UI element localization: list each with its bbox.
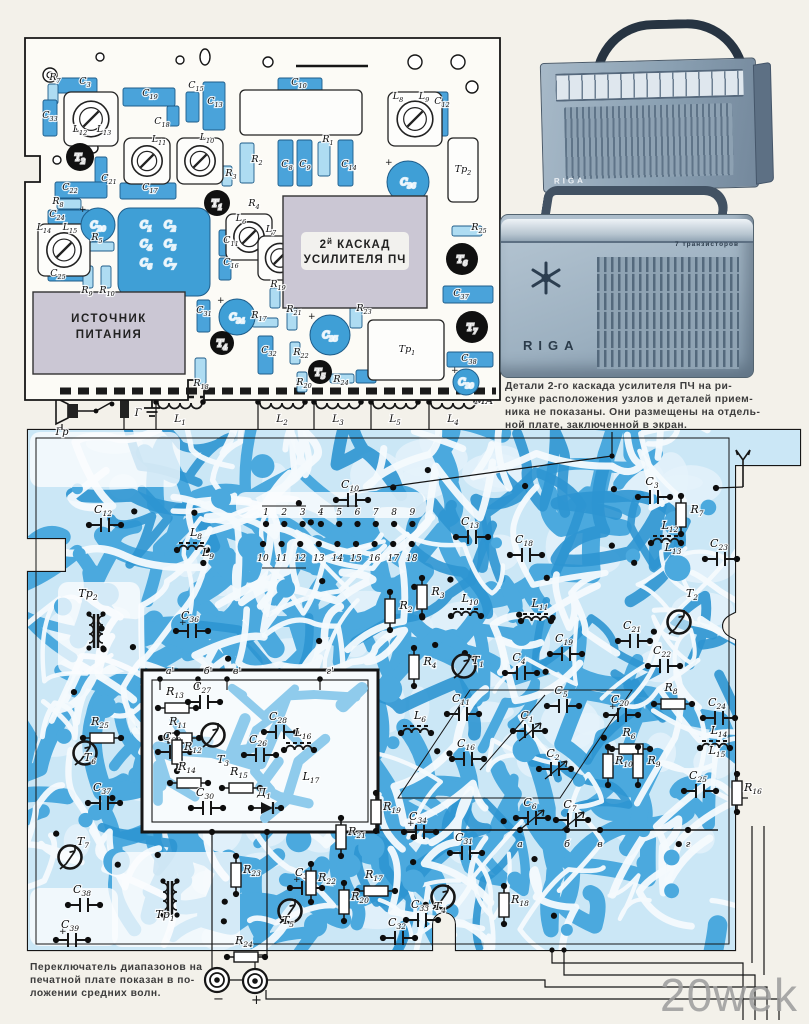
label-в: в [597, 839, 603, 850]
caption-line: Переключатель диапазонов на [30, 961, 242, 974]
label-L4: L4 [446, 413, 459, 427]
comp-part [57, 78, 97, 93]
label-1: 1 [263, 508, 269, 518]
radio-photo-2: 7 транзисторов RIGA [496, 184, 760, 384]
label-4: 4 [317, 508, 324, 518]
label-г: г [686, 839, 691, 850]
svg-text:+: + [79, 205, 87, 215]
radio2-emblem-icon [529, 261, 563, 295]
radio1-speaker-grille [564, 103, 734, 179]
sym-t [668, 610, 691, 634]
label-а': а' [166, 666, 174, 677]
label-13: 13 [313, 554, 325, 564]
comp-part [318, 142, 330, 176]
radio2-chrome-strip [501, 219, 753, 243]
label-8: 8 [391, 508, 397, 518]
label-L2: L2 [275, 413, 288, 427]
label-15: 15 [350, 554, 362, 564]
label-7: 7 [373, 508, 379, 518]
label-в': в' [233, 666, 241, 677]
label-14: 14 [332, 554, 344, 564]
note-right: Детали 2-го каскада усилителя ПЧ на ри- … [505, 381, 805, 433]
label-11: 11 [276, 554, 287, 564]
connector-sign: + [251, 993, 262, 1008]
shield-ps-title: ПИТАНИЯ [76, 329, 142, 341]
radio2-body: 7 транзисторов RIGA [500, 214, 754, 378]
radio2-brand-label: RIGA [523, 338, 580, 353]
label-б: б [564, 839, 570, 850]
radio2-subtitle: 7 транзисторов [675, 241, 739, 248]
label-17: 17 [387, 554, 399, 564]
label-3: 3 [300, 508, 306, 518]
radio1-body: RIGA [540, 57, 759, 193]
caption-line: печатной плате показан в по- [30, 974, 242, 987]
svg-text:+: + [451, 366, 459, 376]
sym-t [202, 723, 225, 747]
label-L5: L5 [388, 413, 401, 427]
note-line: сунке расположения узлов и деталей прием… [505, 394, 805, 407]
radio-photo-1: RIGA [533, 17, 786, 199]
caption-line: ложении средних волн. [30, 987, 242, 1000]
shield-ps-title: ИСТОЧНИК [71, 313, 147, 325]
label-10: 10 [257, 554, 269, 564]
caption-bottom: Переключатель диапазонов на печатной пла… [30, 961, 242, 1001]
comp-part [240, 90, 362, 135]
note-line: ника не показаны. Они размещены на отдел… [505, 407, 805, 420]
shield-if-title2: УСИЛИТЕЛЯ ПЧ [304, 254, 407, 266]
label-б': б' [204, 666, 212, 677]
radio1-side-panel [753, 62, 774, 185]
note-line: ной плате, заключенной в экран. [505, 420, 805, 433]
svg-text:+: + [308, 312, 316, 322]
label-6: 6 [355, 508, 361, 518]
label-Г: Г [134, 408, 142, 419]
component-board: C1C2C4C5C6C7+C20+C34+C35+C36+C39Т1Т2Т4Т5… [25, 38, 500, 400]
sym-t [59, 845, 82, 869]
label-12: 12 [294, 554, 306, 564]
label-18: 18 [406, 554, 418, 564]
label-L3: L3 [331, 413, 344, 427]
comp-part [186, 92, 199, 122]
watermark: 20wek [660, 968, 798, 1022]
label-R16: R16 [743, 781, 762, 796]
svg-text:+: + [385, 158, 393, 168]
label-5: 5 [336, 508, 342, 518]
magazine-page: а'б'в'г'абвг123456789101112131415161718C… [0, 0, 809, 1024]
label-9: 9 [410, 508, 416, 518]
svg-text:+: + [217, 296, 225, 306]
label-16: 16 [369, 554, 381, 564]
label-L1: L1 [173, 413, 186, 427]
label-г': г' [326, 666, 333, 677]
pcb-board: а'б'в'г'абвг123456789101112131415161718C… [0, 333, 809, 1024]
radio2-speaker-grille [597, 257, 739, 369]
label-а: а [517, 839, 523, 850]
label-2: 2 [280, 508, 287, 518]
radio1-dial-scale [555, 69, 744, 102]
